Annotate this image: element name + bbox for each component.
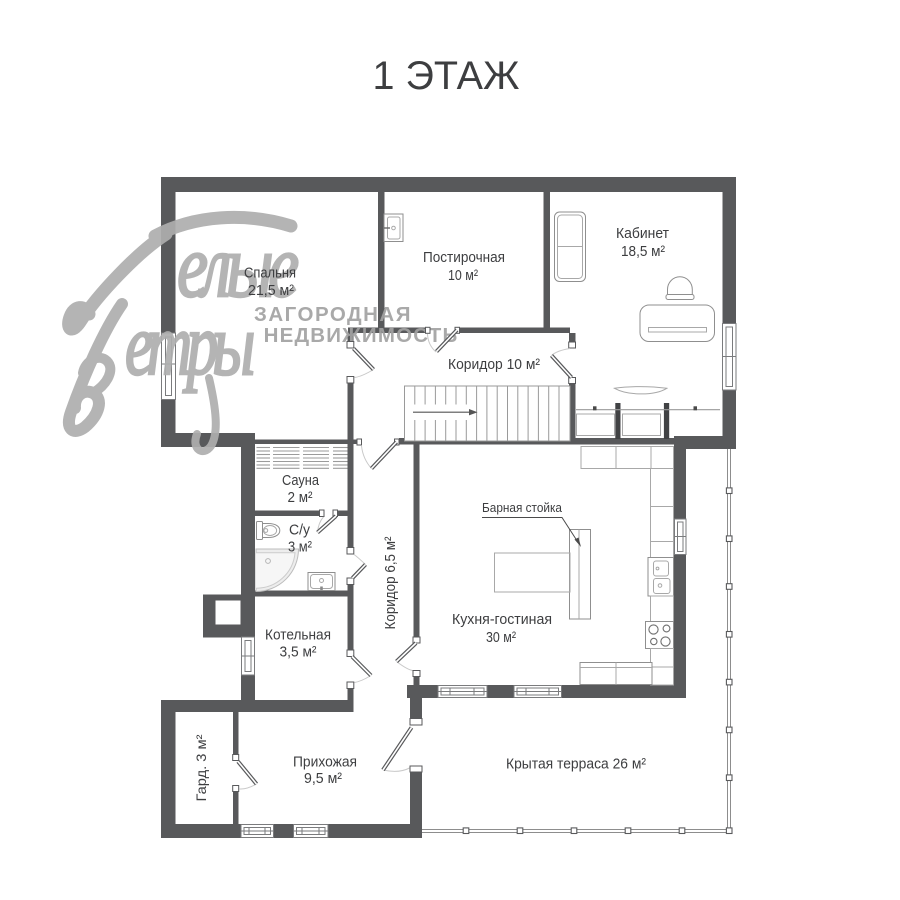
svg-text:Кабинет: Кабинет — [616, 225, 669, 242]
svg-text:2 м²: 2 м² — [288, 489, 313, 506]
svg-text:Прихожая: Прихожая — [293, 754, 357, 771]
svg-text:9,5 м²: 9,5 м² — [304, 770, 342, 787]
svg-text:30 м²: 30 м² — [486, 629, 516, 646]
svg-text:Барная стойка: Барная стойка — [482, 501, 562, 515]
svg-text:3,5 м²: 3,5 м² — [280, 644, 317, 661]
svg-text:Котельная: Котельная — [265, 627, 331, 644]
svg-text:1 ЭТАЖ: 1 ЭТАЖ — [373, 54, 520, 98]
svg-text:С/у: С/у — [289, 522, 310, 539]
svg-text:21,5 м²: 21,5 м² — [248, 282, 294, 299]
svg-text:Кухня-гостиная: Кухня-гостиная — [452, 611, 552, 628]
svg-text:Спальня: Спальня — [244, 265, 296, 282]
svg-text:Крытая терраса 26 м²: Крытая терраса 26 м² — [506, 756, 646, 773]
svg-text:Постирочная: Постирочная — [423, 249, 505, 266]
svg-text:3 м²: 3 м² — [288, 539, 312, 556]
svg-text:Гард. 3 м²: Гард. 3 м² — [194, 734, 209, 802]
svg-text:Коридор 6,5 м²: Коридор 6,5 м² — [382, 536, 399, 629]
svg-text:Коридор 10 м²: Коридор 10 м² — [448, 356, 540, 373]
svg-text:18,5 м²: 18,5 м² — [621, 243, 665, 260]
svg-text:10 м²: 10 м² — [448, 267, 478, 284]
svg-text:ЗАГОРОДНАЯ: ЗАГОРОДНАЯ — [254, 303, 412, 326]
svg-text:Сауна: Сауна — [282, 472, 320, 489]
svg-text:етры: етры — [125, 296, 254, 394]
